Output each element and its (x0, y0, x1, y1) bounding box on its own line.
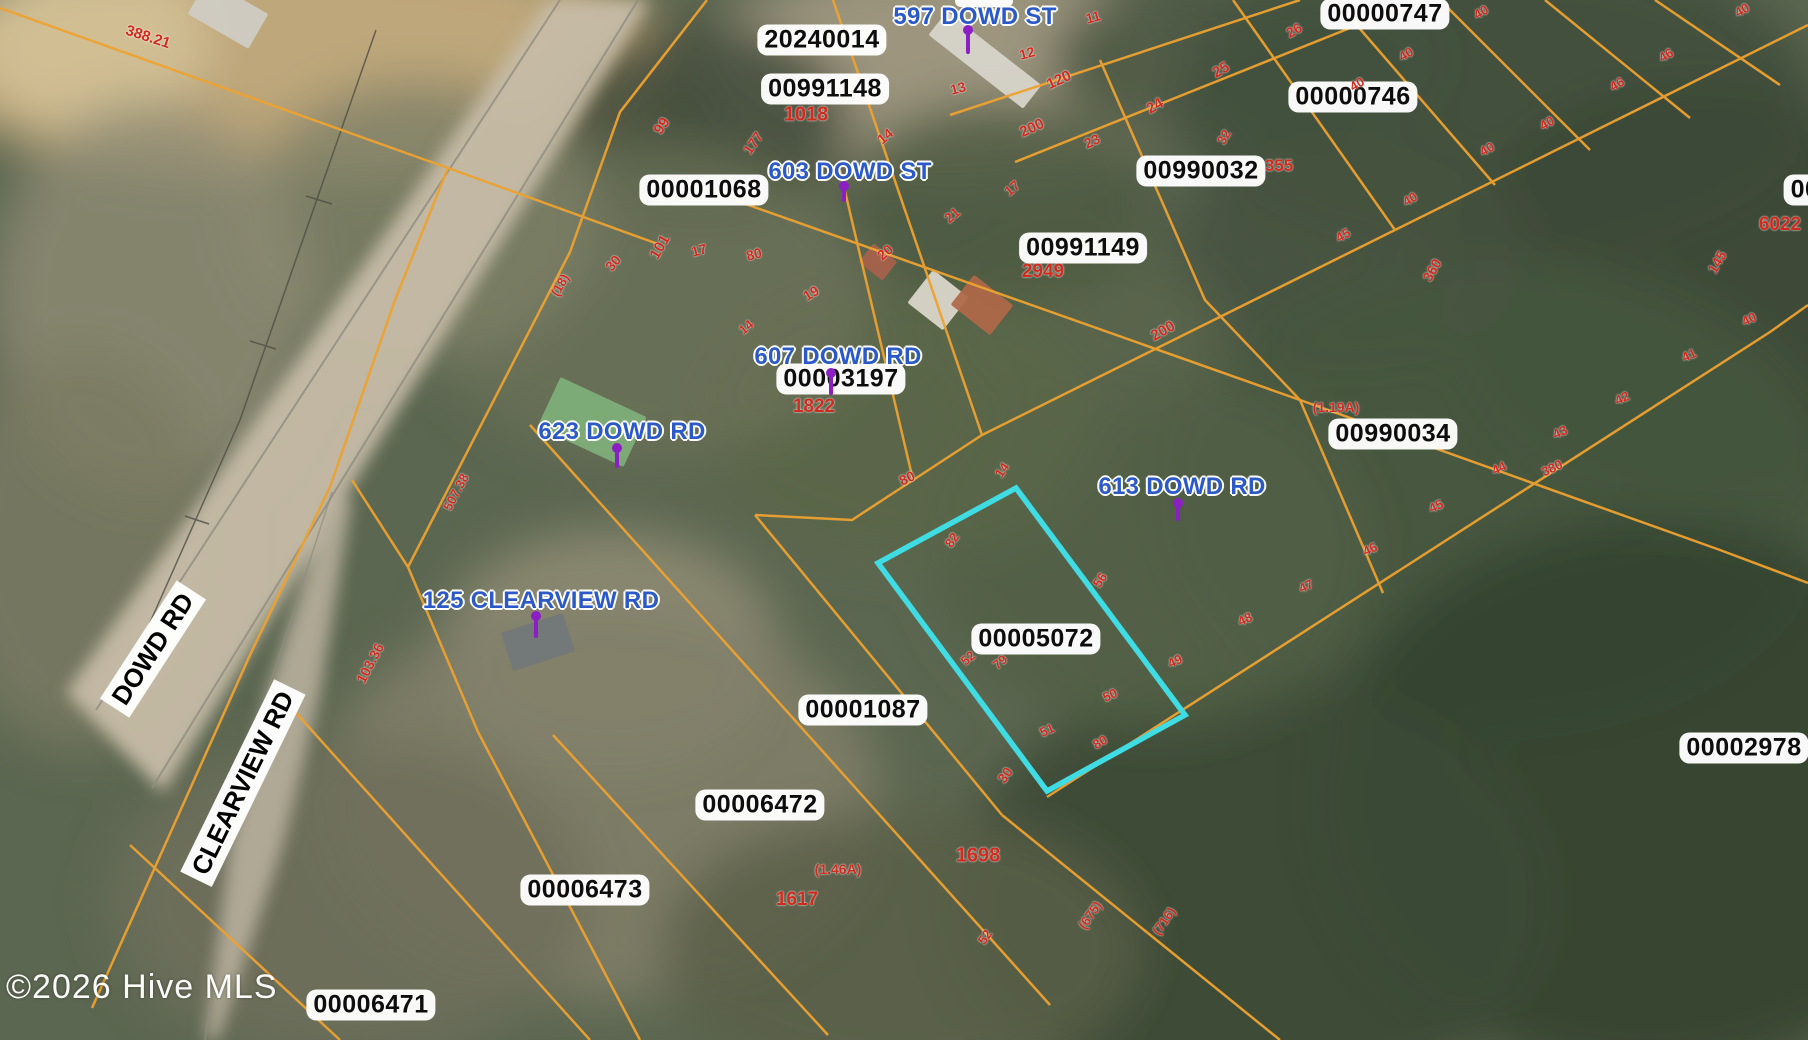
parcel-boundary-line (1233, 0, 1395, 230)
parcel-id-label: 00 (1784, 175, 1808, 206)
parcel-id-label: 00991148 (761, 74, 889, 105)
parcel-boundary-line (840, 170, 913, 480)
parcel-boundary-line (1655, 0, 1780, 85)
parcel-id-label: 00006473 (520, 875, 649, 906)
rust-roof-house (951, 275, 1014, 336)
dimension-label: 1617 (776, 889, 818, 911)
map-canvas[interactable]: 2024001400991148000010680000074700000746… (0, 0, 1808, 1040)
parcel-boundary-line (352, 480, 408, 567)
dimension-label: 1822 (793, 396, 835, 418)
address-label: 597 DOWD ST (893, 3, 1056, 31)
parcel-id-label: 00991149 (1019, 233, 1147, 264)
copyright-watermark: ©2026 Hive MLS (6, 968, 278, 1007)
white-roof-top-left (188, 0, 269, 49)
dimension-label: (1.19A) (1313, 399, 1360, 415)
parcel-id-label: 00006472 (695, 790, 824, 821)
address-label: 623 DOWD RD (538, 418, 705, 446)
parcel-boundary-line (280, 695, 590, 1040)
buildings (188, 0, 1042, 671)
gray-structure (501, 613, 575, 671)
dimension-label: 1698 (956, 845, 1001, 868)
parcel-boundaries (0, 0, 1808, 1040)
parcel-boundary-line (92, 168, 448, 1008)
parcel-boundary-line (1047, 305, 1808, 797)
parcel-boundary-line (1440, 0, 1590, 150)
address-label: 613 DOWD RD (1098, 473, 1265, 501)
dimension-label: 1018 (784, 104, 829, 127)
parcel-boundary-line (1002, 815, 1280, 1040)
parcel-layer (0, 0, 1808, 1040)
parcel-id-label: 00006471 (306, 990, 435, 1021)
parcel-id-label: 00002978 (1679, 733, 1808, 764)
parcel-id-label: 00000747 (1320, 0, 1449, 30)
address-label: 607 DOWD RD (754, 343, 921, 371)
dimension-label: (1.46A) (815, 861, 862, 877)
dimension-label: 2949 (1022, 261, 1064, 283)
address-label: 125 CLEARVIEW RD (423, 587, 659, 615)
address-label: 603 DOWD ST (768, 158, 931, 186)
parcel-boundary-line (448, 168, 658, 244)
parcel-id-label: 00990034 (1328, 419, 1457, 450)
dimension-label: 355 (1265, 156, 1293, 176)
parcel-id-label: 00990032 (1136, 156, 1265, 187)
parcel-boundary-line (1100, 60, 1300, 400)
parcel-id-label: 20240014 (757, 25, 886, 56)
parcel-id-label: 00005072 (971, 624, 1100, 655)
dimension-label: 6022 (1759, 214, 1801, 236)
parcel-id-label: 00001068 (639, 175, 768, 206)
parcel-boundary-line (755, 435, 982, 520)
parcel-id-label: 00001087 (798, 695, 927, 726)
